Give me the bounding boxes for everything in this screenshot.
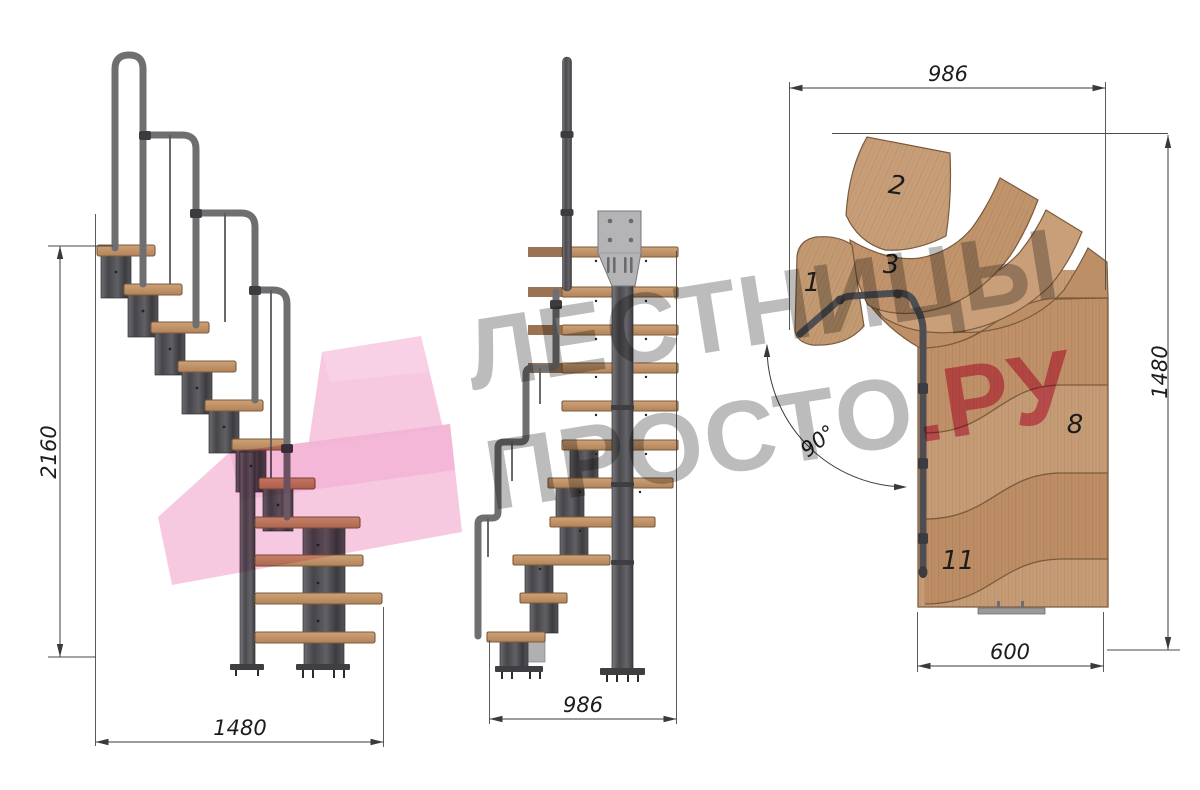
tread — [520, 593, 567, 603]
dim-plan-flight-width: 600 — [990, 640, 1030, 664]
dimension-flight-width: 600 — [918, 612, 1104, 672]
tread — [151, 322, 209, 333]
step-label-11: 11 — [941, 546, 974, 576]
arrowhead-left — [790, 85, 803, 91]
rail-clamp — [139, 131, 151, 140]
dim-side-height: 2160 — [37, 425, 61, 478]
base-plate — [600, 668, 645, 675]
step-module — [560, 527, 588, 557]
newel-pole — [563, 57, 572, 291]
technical-drawing: 2160 1480 — [0, 0, 1200, 790]
dim-plan-width: 986 — [928, 62, 968, 86]
arrowhead-right — [1093, 85, 1106, 91]
anchor-bolts — [236, 670, 344, 678]
pole-clamp — [561, 209, 574, 216]
tread — [178, 361, 236, 372]
arrowhead-right — [1091, 663, 1104, 669]
rail-clamp — [249, 286, 261, 295]
arrowhead-right — [664, 716, 677, 722]
pole-clamp — [561, 131, 574, 138]
arrowhead-down — [57, 644, 63, 657]
drawing-canvas: 2160 1480 — [0, 0, 1200, 790]
base-plate — [495, 666, 543, 672]
base-plate — [230, 664, 264, 670]
rail-clamp — [190, 209, 202, 218]
arrowhead-left — [96, 739, 109, 745]
tread — [255, 593, 382, 604]
dimension-length: 1480 — [1107, 135, 1180, 650]
dim-front-width: 986 — [563, 693, 603, 717]
arrowhead-left — [918, 663, 931, 669]
arrowhead-up — [57, 246, 63, 259]
arrowhead-left — [490, 716, 503, 722]
arrowhead-right — [371, 739, 384, 745]
step-module — [530, 603, 558, 633]
arrowhead-up — [1165, 135, 1171, 148]
dim-plan-length: 1480 — [1148, 345, 1172, 398]
arrowhead-down — [1165, 637, 1171, 650]
tread — [124, 284, 182, 295]
dim-side-depth: 1480 — [213, 716, 266, 740]
tread — [255, 632, 375, 643]
tread — [513, 555, 610, 565]
tread — [487, 632, 545, 642]
step-module — [304, 642, 344, 666]
arrowhead-right — [894, 484, 907, 490]
step-module — [500, 642, 528, 668]
base-plate — [296, 664, 350, 670]
